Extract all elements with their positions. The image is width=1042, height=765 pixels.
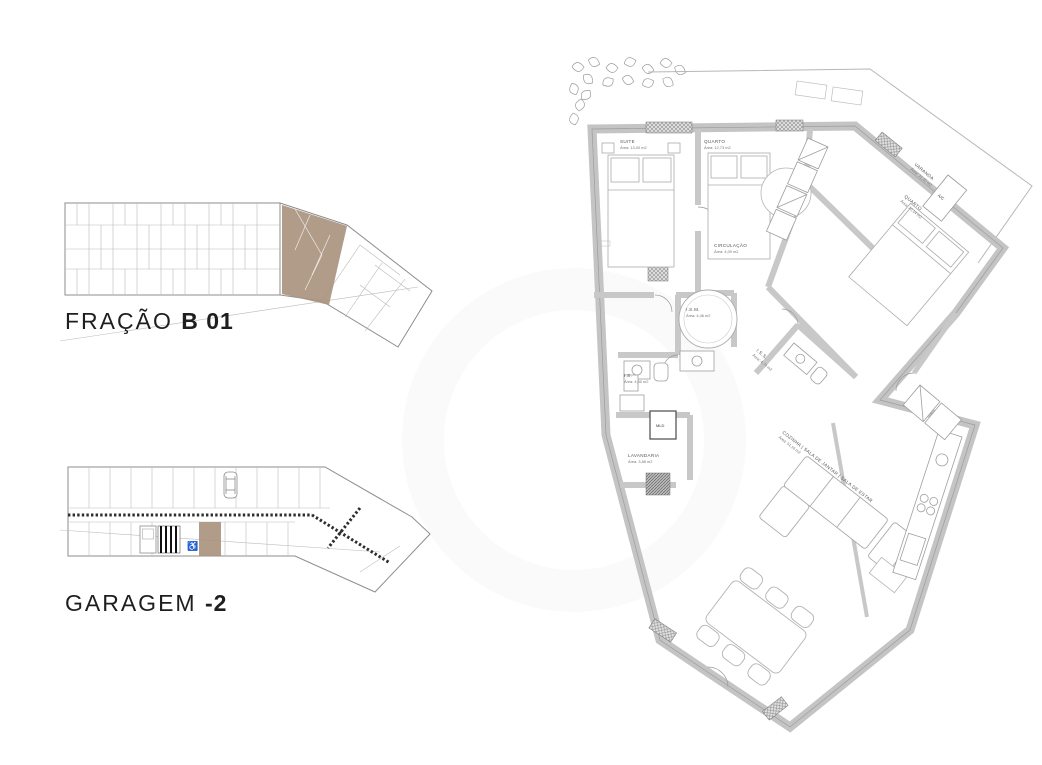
fracao-title: FRAÇÃO B 01	[65, 308, 234, 335]
main-floor-plan: A/C MLD	[558, 55, 1042, 761]
label-is-area: Área: 4,50 m2	[624, 379, 648, 384]
label-ism-area: Área: 4,46 m2	[686, 313, 710, 318]
garage-outline	[68, 467, 430, 592]
quarto2-bed	[849, 203, 969, 325]
label-ism: I.S.M.	[686, 307, 700, 312]
label-circulacao-area: Área: 4,09 m2	[714, 249, 738, 254]
label-quarto1: QUARTO	[704, 139, 725, 144]
highlighted-parking-bay	[199, 522, 221, 556]
ism-vanity	[680, 351, 714, 371]
mld-unit: MLD	[650, 411, 676, 439]
garagem-title: GARAGEM -2	[65, 590, 227, 617]
fracao-title-bold: B 01	[181, 308, 234, 334]
garagem-title-bold: -2	[205, 590, 227, 616]
plan-sheet: FRAÇÃO B 01	[0, 0, 1042, 765]
ism-round-tub	[679, 290, 737, 348]
suite-bed	[602, 143, 680, 267]
label-suite: SUITE	[620, 139, 635, 144]
foliage	[568, 56, 688, 126]
wheelchair-icon: ♿	[187, 540, 198, 551]
car-icon	[224, 472, 237, 498]
fracao-title-regular: FRAÇÃO	[65, 308, 173, 334]
label-lavandaria-area: Área: 3,88 m2	[628, 459, 652, 464]
terrace-furniture	[795, 81, 863, 105]
garage-stairs	[158, 526, 180, 553]
mld-label: MLD	[656, 423, 665, 428]
label-quarto1-area: Área: 12,73 m2	[704, 145, 731, 150]
garagem-key-plan: ♿	[60, 460, 440, 600]
garagem-title-regular: GARAGEM	[65, 590, 197, 616]
label-lavandaria: LAVANDARIA	[628, 453, 660, 458]
label-circulacao: CIRCULAÇÃO	[714, 242, 747, 248]
label-suite-area: Área: 13,00 m2	[620, 145, 647, 150]
label-is: I.S.	[624, 373, 632, 378]
